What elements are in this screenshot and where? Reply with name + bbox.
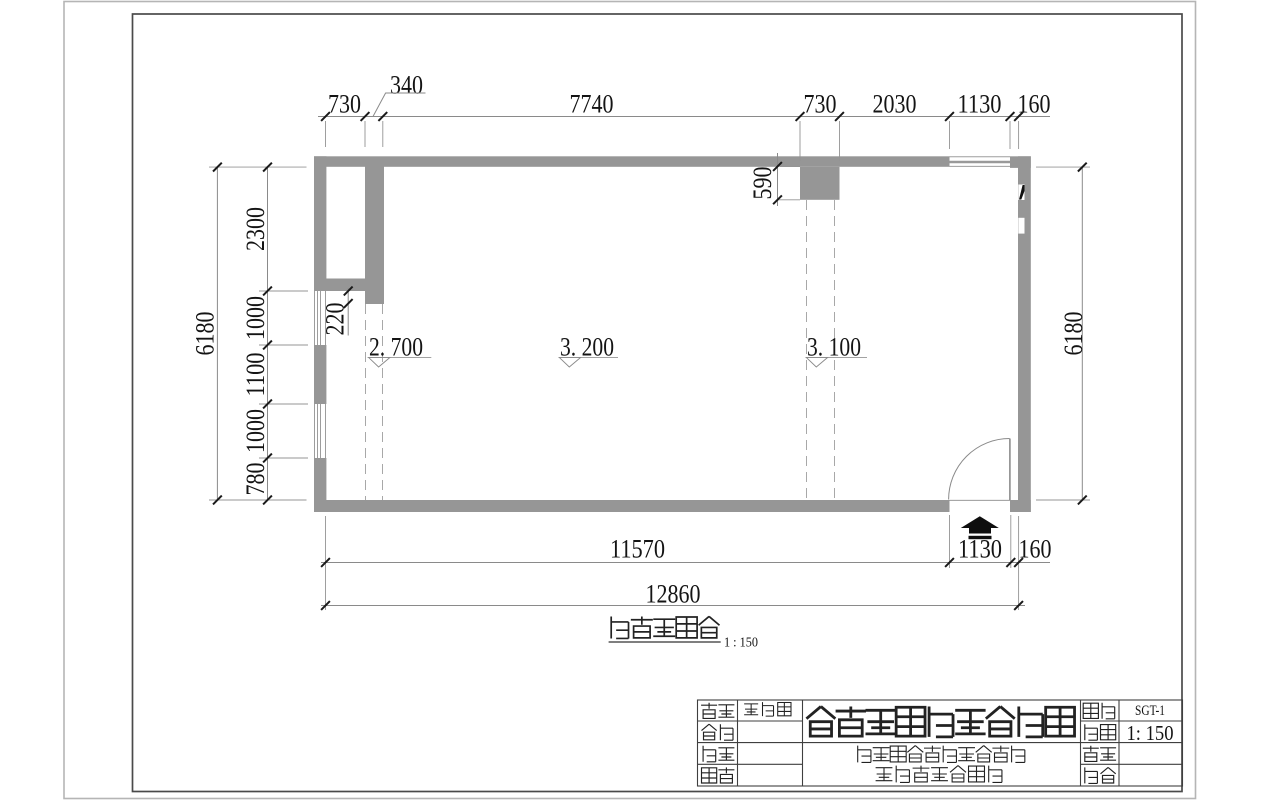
svg-text:7740: 7740 (570, 90, 614, 119)
svg-text:730: 730 (328, 90, 361, 119)
svg-text:1000: 1000 (241, 409, 270, 453)
svg-text:590: 590 (748, 167, 777, 200)
svg-text:220: 220 (321, 303, 350, 336)
svg-text:160: 160 (1019, 535, 1052, 564)
svg-text:730: 730 (804, 90, 837, 119)
svg-text:1 : 150: 1 : 150 (724, 636, 758, 651)
svg-text:2030: 2030 (873, 90, 917, 119)
svg-text:160: 160 (1018, 90, 1051, 119)
svg-text:2300: 2300 (241, 207, 270, 251)
svg-text:1100: 1100 (241, 353, 270, 397)
svg-text:SGT-1: SGT-1 (1135, 703, 1165, 719)
svg-text:11570: 11570 (610, 535, 665, 564)
svg-text:340: 340 (390, 71, 423, 100)
svg-text:780: 780 (241, 463, 270, 496)
svg-text:6180: 6180 (1059, 312, 1088, 356)
svg-text:12860: 12860 (646, 580, 701, 609)
svg-text:6180: 6180 (191, 312, 220, 356)
svg-text:1000: 1000 (241, 296, 270, 340)
svg-text:1130: 1130 (958, 90, 1002, 119)
svg-text:1: 150: 1: 150 (1127, 721, 1174, 745)
svg-text:1130: 1130 (958, 535, 1002, 564)
